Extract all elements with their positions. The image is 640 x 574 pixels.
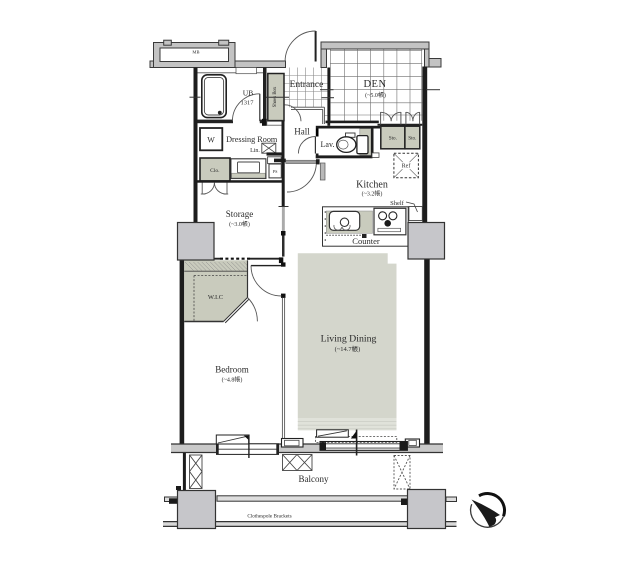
svg-text:UB: UB — [243, 89, 253, 98]
svg-text:1317: 1317 — [241, 100, 255, 107]
svg-text:Living Dining: Living Dining — [321, 333, 377, 344]
svg-text:Lav.: Lav. — [321, 140, 335, 149]
svg-text:W.I.C: W.I.C — [208, 294, 223, 301]
svg-text:(~14.7帳): (~14.7帳) — [335, 344, 361, 353]
svg-text:(~3.2帳): (~3.2帳) — [362, 190, 383, 198]
svg-text:Hall: Hall — [294, 127, 310, 137]
svg-text:W: W — [207, 136, 215, 145]
svg-text:MB: MB — [192, 49, 199, 54]
svg-text:Ref: Ref — [402, 163, 411, 170]
svg-text:(~5.0帳): (~5.0帳) — [365, 91, 386, 99]
svg-text:Storage: Storage — [226, 209, 254, 219]
svg-text:Balcony: Balcony — [299, 474, 329, 484]
svg-text:Kitchen: Kitchen — [356, 180, 388, 191]
svg-text:Clo.: Clo. — [210, 168, 220, 174]
svg-text:(~3.0帳): (~3.0帳) — [229, 220, 250, 228]
svg-text:DEN: DEN — [363, 79, 386, 90]
svg-text:Sto.: Sto. — [408, 136, 416, 142]
svg-text:Shoes Box: Shoes Box — [273, 86, 278, 107]
svg-text:Clothespole Brackets: Clothespole Brackets — [247, 514, 291, 520]
svg-text:Lin.: Lin. — [250, 148, 260, 154]
svg-text:Bedroom: Bedroom — [215, 365, 249, 375]
svg-text:(~4.8帳): (~4.8帳) — [222, 376, 243, 384]
svg-text:Counter: Counter — [352, 236, 380, 246]
svg-text:Entrance: Entrance — [290, 80, 324, 90]
svg-text:Shelf: Shelf — [390, 200, 405, 207]
svg-text:Sto.: Sto. — [389, 136, 397, 142]
svg-text:Dressing Room: Dressing Room — [226, 135, 278, 144]
svg-text:PS: PS — [273, 169, 278, 174]
